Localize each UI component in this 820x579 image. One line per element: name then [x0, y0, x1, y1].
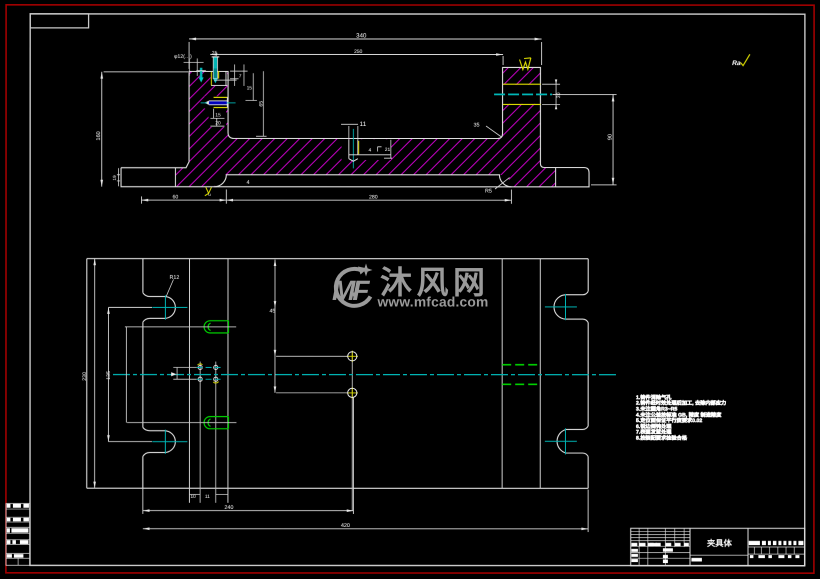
svg-text:4: 4: [247, 180, 250, 186]
svg-text:60: 60: [173, 195, 179, 201]
svg-text:夹具体: 夹具体: [707, 538, 733, 548]
svg-text:15: 15: [247, 86, 253, 92]
svg-text:420: 420: [341, 523, 350, 529]
svg-text:7: 7: [239, 73, 242, 79]
svg-text:135: 135: [106, 371, 112, 380]
svg-text:45: 45: [269, 308, 275, 314]
svg-text:280: 280: [369, 195, 378, 201]
svg-text:R5: R5: [485, 188, 492, 194]
svg-text:20: 20: [215, 121, 221, 127]
svg-text:8.按装配要求检验合格: 8.按装配要求检验合格: [636, 435, 688, 442]
svg-text:65: 65: [258, 101, 264, 107]
svg-text:MF: MF: [332, 275, 370, 306]
svg-text:90: 90: [607, 134, 613, 140]
svg-text:240: 240: [224, 505, 233, 511]
svg-text:340: 340: [356, 33, 367, 40]
svg-text:160: 160: [96, 131, 102, 140]
svg-text:35: 35: [474, 123, 480, 129]
svg-text:230: 230: [82, 372, 88, 381]
svg-text:30: 30: [556, 92, 562, 98]
svg-text:21: 21: [385, 147, 391, 153]
svg-text:10: 10: [190, 494, 196, 500]
svg-text:19: 19: [112, 175, 117, 181]
svg-text:R12: R12: [170, 275, 180, 281]
svg-text:Ra: Ra: [732, 60, 741, 67]
svg-text:www.mfcad.com: www.mfcad.com: [376, 294, 488, 309]
svg-text:15: 15: [215, 112, 221, 118]
svg-text:11: 11: [360, 121, 367, 128]
svg-text:4: 4: [369, 147, 372, 153]
svg-text:250: 250: [354, 49, 363, 55]
svg-text:25: 25: [212, 51, 218, 57]
svg-text:11: 11: [205, 494, 210, 500]
